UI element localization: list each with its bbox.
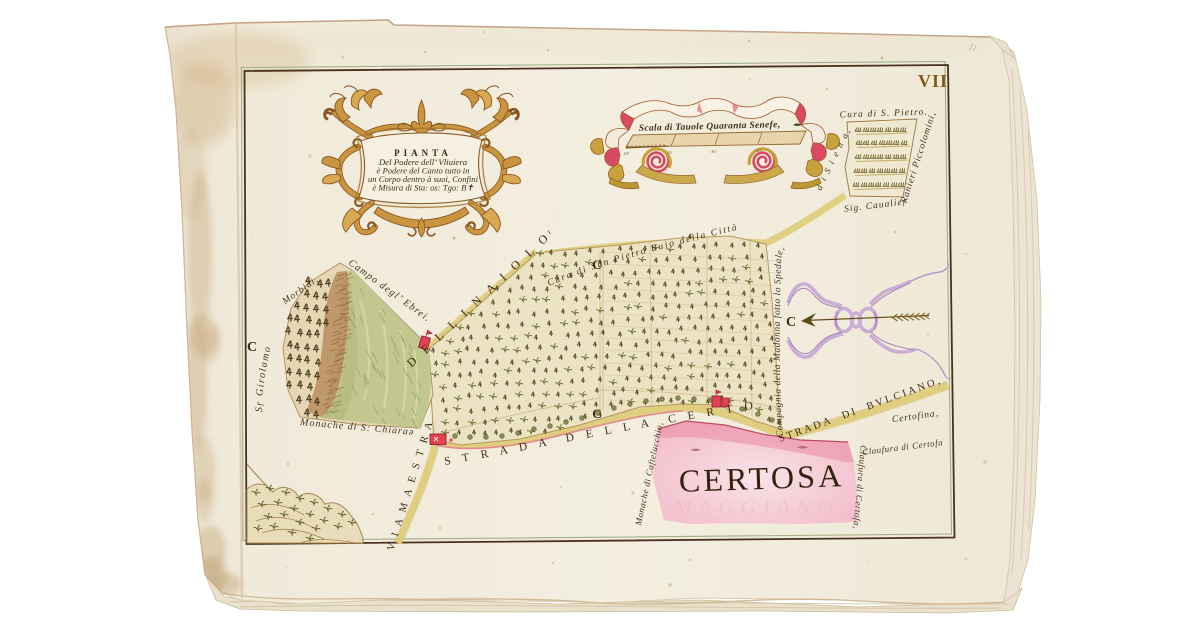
svg-text:è Misura di Sta: os: Tgo: B✝: è Misura di Sta: os: Tgo: B✝ (372, 183, 473, 193)
svg-text:30: 30 (711, 149, 716, 154)
svg-text:C: C (247, 340, 257, 355)
svg-text:C: C (592, 406, 601, 421)
svg-text:CERTOSA: CERTOSA (678, 457, 845, 499)
svg-text:20: 20 (667, 150, 672, 155)
svg-text:VII: VII (918, 71, 948, 91)
svg-text:40: 40 (756, 148, 761, 153)
svg-text:C: C (786, 315, 796, 330)
svg-text:10: 10 (623, 151, 628, 156)
svg-text:MAGGIANO: MAGGIANO (673, 495, 840, 519)
svg-text:C: C (592, 257, 601, 272)
